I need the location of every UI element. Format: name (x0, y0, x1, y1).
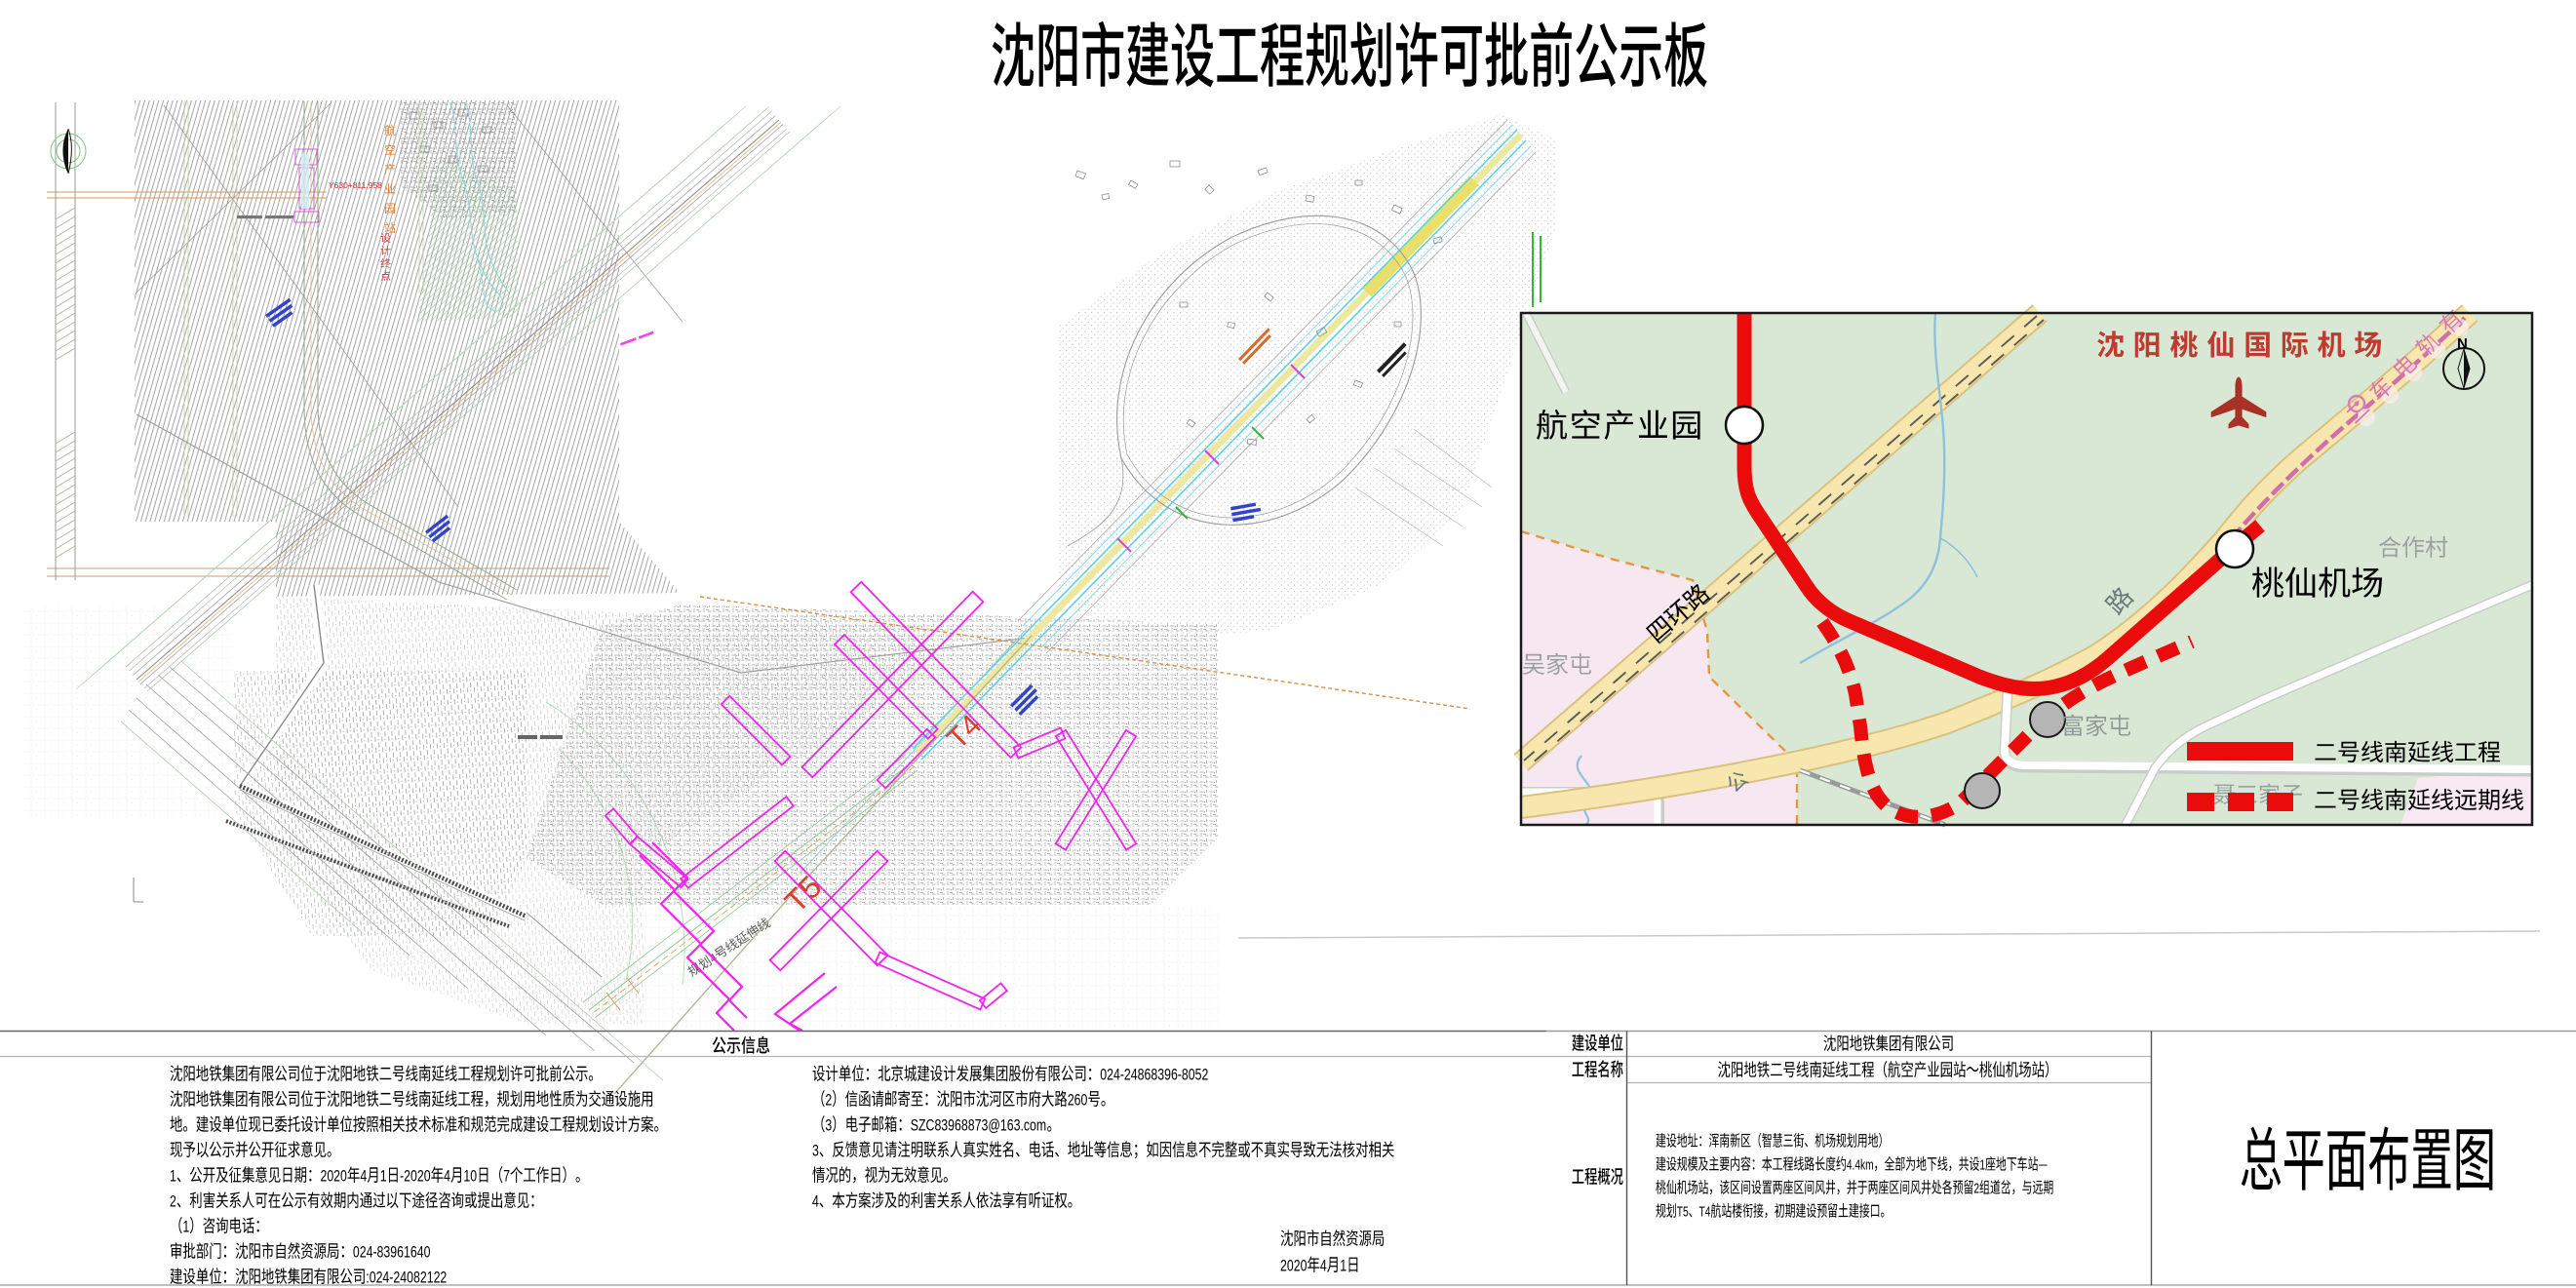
svg-text:4: 4 (1320, 1258, 1327, 1275)
svg-text:3: 3 (812, 1143, 819, 1160)
svg-text:1: 1 (170, 1168, 176, 1186)
svg-text:10: 10 (463, 1168, 477, 1186)
svg-text:2020: 2020 (320, 1168, 346, 1186)
svg-text:SZC83968873@163.com: SZC83968873@163.com (911, 1117, 1046, 1135)
svg-text:T4: T4 (1698, 1202, 1710, 1220)
svg-text:-2020: -2020 (400, 1168, 431, 1186)
svg-text:2: 2 (170, 1193, 176, 1211)
svg-text:Y630+811.958: Y630+811.958 (329, 180, 382, 190)
svg-text:7: 7 (503, 1168, 510, 1186)
svg-text:4: 4 (360, 1168, 367, 1186)
svg-text:260: 260 (1068, 1092, 1088, 1110)
svg-text:4: 4 (444, 1168, 450, 1186)
svg-text:024-24868396-8052: 024-24868396-8052 (1100, 1067, 1208, 1084)
svg-text:4: 4 (812, 1193, 819, 1211)
svg-text:1: 1 (1979, 1155, 1985, 1173)
svg-text:1: 1 (182, 1219, 189, 1236)
svg-text:1: 1 (1340, 1258, 1347, 1275)
svg-text:3: 3 (825, 1117, 832, 1135)
svg-text:N: N (2457, 335, 2468, 352)
svg-text:024-83961640: 024-83961640 (353, 1244, 431, 1262)
svg-text::024-24082122: :024-24082122 (366, 1269, 447, 1287)
svg-text:T5: T5 (1677, 1202, 1689, 1220)
svg-text:4.4km: 4.4km (1847, 1155, 1874, 1173)
svg-text:1: 1 (380, 1168, 387, 1186)
svg-text:2: 2 (1973, 1179, 1979, 1196)
svg-text:2: 2 (825, 1092, 832, 1110)
svg-text:2020: 2020 (1280, 1258, 1307, 1275)
